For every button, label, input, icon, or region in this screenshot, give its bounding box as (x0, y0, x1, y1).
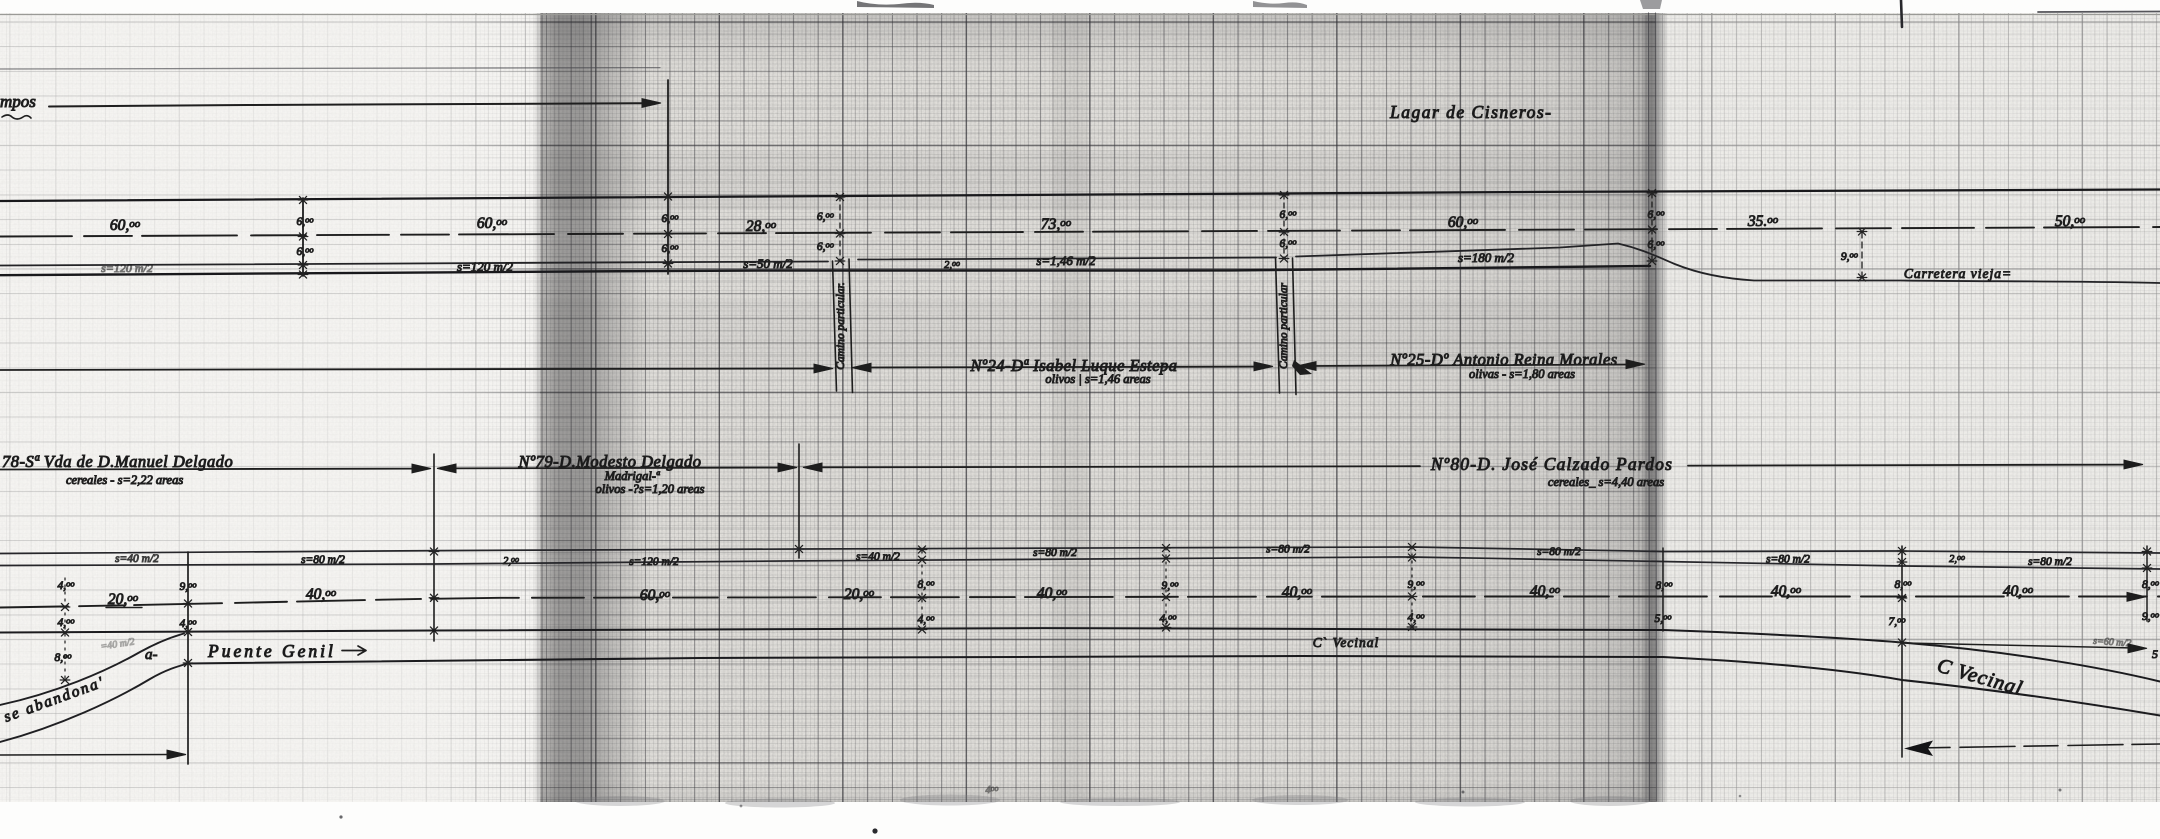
svg-text:20,oo: 20,oo (844, 586, 875, 603)
svg-text:Cˋ Vecinal: Cˋ Vecinal (1313, 635, 1380, 650)
svg-text:s=40 m/2: s=40 m/2 (856, 551, 900, 563)
svg-text:8,oo: 8,oo (1655, 579, 1672, 593)
svg-text:4,oo: 4,oo (1159, 612, 1176, 626)
svg-text:2,oo: 2,oo (1949, 553, 1965, 565)
svg-text:mpos: mpos (0, 92, 36, 111)
svg-text:Nº80-D. José Calzado Pardos: Nº80-D. José Calzado Pardos (1430, 454, 1673, 474)
svg-text:4,oo: 4,oo (57, 579, 74, 593)
svg-text:=40 m/2: =40 m/2 (100, 636, 136, 652)
svg-text:s=80 m/2: s=80 m/2 (1266, 544, 1310, 556)
svg-text:s=180 m/2: s=180 m/2 (1458, 250, 1515, 265)
svg-text:s=120 m/2: s=120 m/2 (457, 259, 514, 274)
svg-text:78-Sª Vda de D.Manuel Delgado: 78-Sª Vda de D.Manuel Delgado (2, 452, 233, 471)
svg-text:Puente Genil: Puente Genil (207, 641, 336, 661)
svg-text:6,oo: 6,oo (1647, 208, 1664, 222)
svg-text:9,oo: 9,oo (1161, 579, 1178, 593)
svg-text:9,oo: 9,oo (1407, 578, 1424, 592)
svg-text:olivos | s=1,46 areas: olivos | s=1,46 areas (1045, 372, 1150, 386)
svg-text:6,oo: 6,oo (661, 242, 678, 256)
svg-text:s=80 m/2: s=80 m/2 (1033, 547, 1077, 559)
svg-text:Madrigal-ª: Madrigal-ª (604, 469, 660, 483)
svg-text:6,oo: 6,oo (296, 245, 313, 259)
svg-text:Lagar de Cisneros-: Lagar de Cisneros- (1389, 102, 1552, 122)
svg-text:s=80 m/2: s=80 m/2 (1766, 554, 1810, 566)
svg-text:s=120 m/2: s=120 m/2 (629, 556, 679, 568)
svg-text:60,oo: 60,oo (640, 587, 671, 604)
svg-text:5,oo: 5,oo (1654, 612, 1671, 626)
svg-text:28,oo: 28,oo (746, 218, 777, 235)
svg-text:olivos -?s=1,20 areas: olivos -?s=1,20 areas (595, 482, 704, 496)
svg-text:8,oo: 8,oo (1894, 578, 1911, 592)
svg-text:4,oo: 4,oo (1407, 611, 1424, 625)
svg-text:a-: a- (145, 647, 158, 663)
svg-text:73,oo: 73,oo (1041, 216, 1072, 233)
svg-text:4oo: 4oo (986, 784, 999, 796)
svg-text:s=1,46 m/2: s=1,46 m/2 (1036, 253, 1096, 268)
svg-text:60,oo: 60,oo (1448, 214, 1479, 231)
svg-text:Carretera vieja=: Carretera vieja= (1904, 266, 2012, 281)
svg-text:40,oo: 40,oo (1282, 584, 1313, 601)
svg-text:2,oo: 2,oo (503, 555, 519, 567)
svg-text:s=50 m/2: s=50 m/2 (743, 256, 793, 271)
svg-text:4,oo: 4,oo (57, 616, 74, 630)
svg-text:se abandonaʹ: se abandonaʹ (2, 673, 108, 725)
svg-text:8,oo: 8,oo (54, 651, 71, 665)
svg-text:60,oo: 60,oo (110, 217, 141, 234)
svg-text:9,oo: 9,oo (179, 580, 196, 594)
svg-text:7,oo: 7,oo (1888, 615, 1905, 629)
svg-text:6,oo: 6,oo (817, 210, 834, 224)
svg-text:35.oo: 35.oo (1747, 213, 1779, 230)
svg-text:6,oo: 6,oo (1279, 237, 1296, 251)
svg-text:6,oo: 6,oo (1647, 238, 1664, 252)
svg-text:4,oo: 4,oo (917, 613, 934, 627)
svg-text:2,oo: 2,oo (944, 259, 960, 271)
svg-text:6,oo: 6,oo (817, 240, 834, 254)
svg-text:8,oo: 8,oo (917, 578, 934, 592)
svg-text:5: 5 (2152, 647, 2158, 661)
svg-text:Camino particular.: Camino particular. (835, 282, 847, 370)
svg-text:C Vecinal: C Vecinal (1935, 655, 2026, 700)
svg-text:s=40 m/2: s=40 m/2 (115, 553, 159, 565)
svg-text:s=80 m/2: s=80 m/2 (301, 554, 345, 566)
svg-text:60,oo: 60,oo (477, 215, 508, 232)
svg-text:9,oo: 9,oo (1841, 250, 1858, 264)
svg-text:6,oo: 6,oo (296, 215, 313, 229)
svg-text:40,oo: 40,oo (1530, 583, 1561, 600)
svg-text:6,oo: 6,oo (1279, 208, 1296, 222)
svg-text:s=80 m/2: s=80 m/2 (1537, 546, 1581, 558)
svg-text:Camino particular: Camino particular (1278, 283, 1290, 369)
svg-text:s=80 m/2: s=80 m/2 (2028, 556, 2072, 568)
svg-text:8,oo: 8,oo (2142, 578, 2159, 592)
svg-text:cereales - s=2,22 areas: cereales - s=2,22 areas (66, 473, 183, 487)
svg-text:cereales_ s=4,40 areas: cereales_ s=4,40 areas (1548, 475, 1664, 489)
svg-text:4,oo: 4,oo (179, 617, 196, 631)
svg-text:s=120 m/2: s=120 m/2 (101, 261, 153, 275)
svg-text:9,oo: 9,oo (2142, 610, 2159, 624)
svg-text:olivas - s=1,80 areas: olivas - s=1,80 areas (1469, 367, 1575, 381)
svg-text:40,oo: 40,oo (1037, 585, 1068, 602)
svg-text:6,oo: 6,oo (661, 212, 678, 226)
